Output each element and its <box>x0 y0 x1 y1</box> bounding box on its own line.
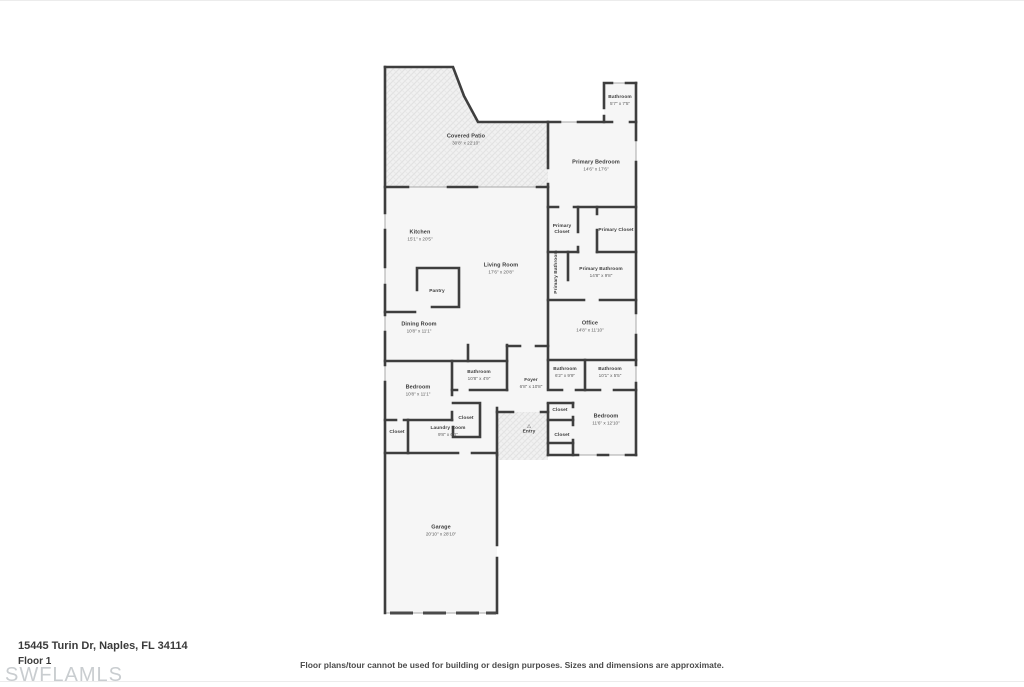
room-name: Bedroom <box>592 413 619 420</box>
room-label-dining-room: Dining Room 10'8" x 11'1" <box>401 321 436 334</box>
room-name: Office <box>576 320 603 327</box>
room-label-living-room: Living Room 17'6" x 20'8" <box>484 262 518 275</box>
room-label-office: Office 14'8" x 11'10" <box>576 320 603 333</box>
room-label-bathroom-top: Bathroom 5'7" x 7'5" <box>608 95 631 107</box>
room-name: Entry <box>523 429 536 435</box>
room-label-bathroom-mid: Bathroom 10'8" x 4'9" <box>467 370 490 382</box>
property-address: 15445 Turin Dr, Naples, FL 34114 <box>18 640 188 652</box>
room-dims: 14'8" x 11'10" <box>576 328 603 334</box>
room-label-bedroom-mid: Bedroom 10'8" x 11'1" <box>406 384 431 397</box>
room-dims: 10'8" x 4'9" <box>467 376 490 382</box>
room-label-entry: △ Entry <box>523 424 536 435</box>
room-dims: 10'1" x 5'5" <box>598 373 621 379</box>
room-name: Primary Closet <box>550 224 574 236</box>
room-dims: 10'8" x 11'1" <box>401 329 436 335</box>
room-label-pantry: Pantry <box>429 289 445 295</box>
room-name: Primary Bathroom <box>554 250 560 293</box>
room-label-kitchen: Kitchen 15'1" x 20'5" <box>407 229 432 242</box>
floor-fills <box>385 67 636 613</box>
room-label-closet-laundry-left: Closet <box>389 430 404 436</box>
room-name: Primary Bedroom <box>572 159 620 166</box>
room-label-covered-patio: Covered Patio 30'8" x 22'10" <box>447 133 485 146</box>
room-name: Closet <box>552 408 567 414</box>
room-dims: 9'8" x 6'1" <box>430 432 465 438</box>
room-label-bathroom-right-b: Bathroom 10'1" x 5'5" <box>598 367 621 379</box>
room-dims: 17'6" x 20'8" <box>484 270 518 276</box>
room-label-foyer: Foyer 6'8" x 10'8" <box>520 378 543 390</box>
room-name: Garage <box>426 524 456 531</box>
room-dims: 14'8" x 9'8" <box>579 273 622 279</box>
room-dims: 14'6" x 17'6" <box>572 167 620 173</box>
room-dims: 6'8" x 10'8" <box>520 384 543 390</box>
room-label-laundry: Laundry Room 9'8" x 6'1" <box>430 426 465 438</box>
room-name: Living Room <box>484 262 518 269</box>
room-dims: 15'1" x 20'5" <box>407 237 432 243</box>
room-label-primary-closet-left: Primary Closet <box>550 224 574 236</box>
room-label-bathroom-right-a: Bathroom 6'2" x 9'9" <box>553 367 576 379</box>
room-label-bedroom-br: Bedroom 11'6" x 12'10" <box>592 413 619 426</box>
room-name: Primary Closet <box>598 228 633 234</box>
room-dims: 20'10" x 28'10" <box>426 532 456 538</box>
room-label-primary-bathroom: Primary Bathroom 14'8" x 9'8" <box>579 267 622 279</box>
room-dims: 10'8" x 11'1" <box>406 392 431 398</box>
floor-plan-drawing <box>0 0 1024 682</box>
floor-plan-page: { "page": { "address": "15445 Turin Dr, … <box>0 0 1024 682</box>
room-dims: 6'2" x 9'9" <box>553 373 576 379</box>
room-name: Closet <box>554 433 569 439</box>
room-name: Dining Room <box>401 321 436 328</box>
room-dims: 11'6" x 12'10" <box>592 421 619 427</box>
disclaimer-text: Floor plans/tour cannot be used for buil… <box>0 660 1024 670</box>
room-name: Covered Patio <box>447 133 485 140</box>
room-label-closet-hall: Closet <box>552 408 567 414</box>
room-label-garage: Garage 20'10" x 28'10" <box>426 524 456 537</box>
room-name: Pantry <box>429 289 445 295</box>
room-label-primary-bedroom: Primary Bedroom 14'6" x 17'6" <box>572 159 620 172</box>
room-name: Bedroom <box>406 384 431 391</box>
room-name: Closet <box>458 416 473 422</box>
room-label-primary-closet-right: Primary Closet <box>598 228 633 234</box>
room-dims: 5'7" x 7'5" <box>608 101 631 107</box>
room-label-closet-laundry-top: Closet <box>458 416 473 422</box>
room-label-primary-bathroom-vertical: Primary Bathroom <box>554 250 560 293</box>
room-name: Closet <box>389 430 404 436</box>
room-label-closet-bedroom: Closet <box>554 433 569 439</box>
room-name: Kitchen <box>407 229 432 236</box>
room-dims: 30'8" x 22'10" <box>447 141 485 147</box>
